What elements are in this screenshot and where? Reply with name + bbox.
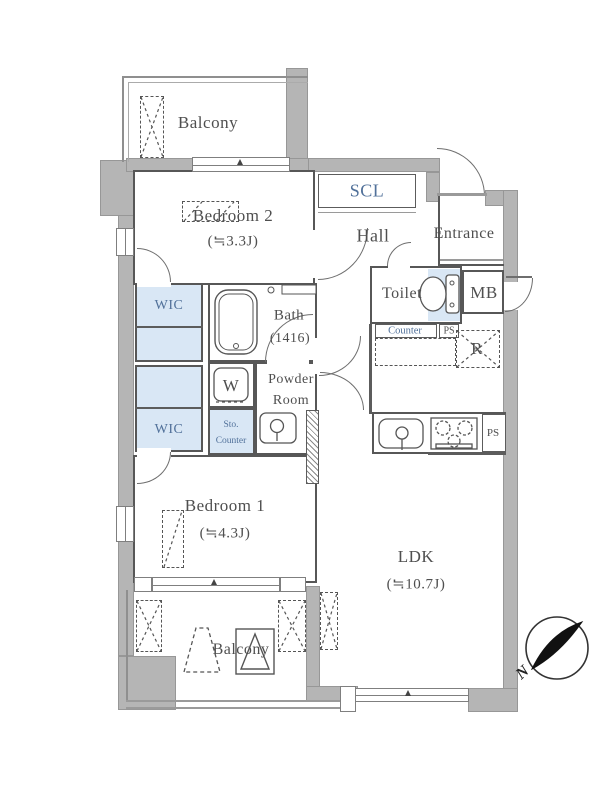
window-left-upper [116,228,134,256]
kitchen-counter-dashed [375,338,456,366]
corridor-wall [369,324,372,414]
wall-top-hall [308,158,440,172]
door-leaf-entrance [437,193,487,196]
toilet-blue-area [428,269,460,321]
entrance-step-line [440,259,503,261]
door-arc-entrance [437,148,485,196]
beam-dashed [162,510,184,568]
window-left-lower [116,506,134,542]
ac-unit-dashed [278,600,306,652]
label-hall: Hall [357,226,390,247]
label-scl: SCL [350,181,385,202]
label-wic-lower: WIC [155,422,184,438]
wic-divider [135,326,203,328]
label-powder-1: Powder [268,372,314,388]
label-balcony-bottom: Balcony [213,641,270,659]
label-wic-upper: WIC [155,298,184,314]
balcony-edge [126,700,356,702]
label-ps-upper: PS [443,326,454,337]
ac-unit-dashed [136,600,162,652]
label-powder-2: Room [273,393,309,409]
window-sill [340,686,356,712]
window-ldk-balcony [355,688,469,702]
scl-shelf-line [318,212,416,213]
label-ldk-size: (≒10.7J) [387,575,446,594]
label-washer: W [223,376,240,396]
label-ps-kitchen: PS [487,427,499,439]
door-leaf-mb [506,276,532,278]
label-refrigerator: R [471,339,483,359]
window-sill [134,577,152,592]
door-arc-powder [319,336,361,376]
kitchen-lip [428,452,506,455]
compass-icon [526,617,588,679]
window-bedroom2-balcony [192,157,290,172]
label-bedroom1: Bedroom 1 [185,496,266,516]
label-bedroom2-size: (≒3.3J) [208,232,259,251]
label-mb: MB [470,283,497,303]
label-entrance: Entrance [434,225,495,243]
label-balcony-top: Balcony [178,113,238,133]
label-ldk: LDK [398,547,434,567]
label-counter: Counter [388,326,422,337]
label-toilet: Toilet [382,285,422,303]
label-bath-size: (1416) [270,331,310,347]
sliding-door [306,410,319,484]
window-sill [280,577,306,592]
ac-unit-dashed [320,592,338,650]
wic-divider [135,407,203,409]
sto-counter-box [208,408,255,455]
door-arc-toilet [387,242,411,266]
floor-plan: Balcony Bedroom 2 (≒3.3J) SCL Hall Entra… [0,0,600,800]
label-sto-2: Counter [216,436,247,446]
balcony-edge [126,707,356,709]
label-sto-1: Sto. [223,420,238,430]
wall-bottom-right [468,688,518,712]
label-bedroom1-size: (≒4.3J) [200,524,251,543]
window-bedroom1-balcony [152,577,280,592]
label-bath: Bath [274,308,304,325]
door-arc-ldk [320,372,364,410]
label-bedroom2: Bedroom 2 [193,206,274,226]
ac-unit-dashed [140,96,164,158]
closet-wic-upper [135,283,203,362]
door-arc-mb [505,278,533,312]
